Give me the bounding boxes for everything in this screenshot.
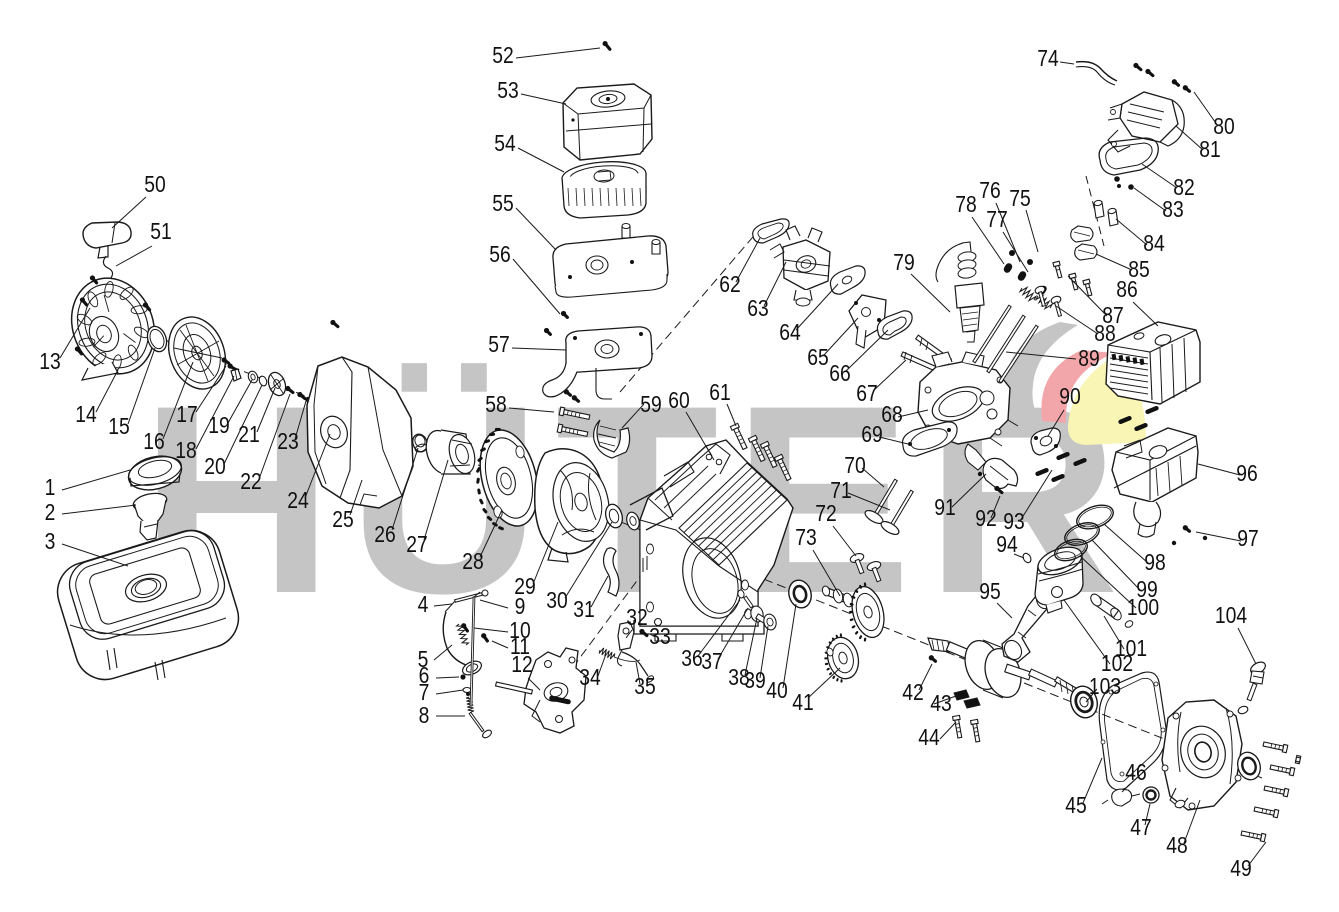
svg-text:4: 4 — [418, 593, 429, 618]
svg-text:62: 62 — [719, 273, 740, 298]
svg-text:57: 57 — [488, 333, 509, 358]
svg-text:66: 66 — [829, 362, 850, 387]
svg-text:7: 7 — [419, 681, 430, 706]
svg-text:34: 34 — [579, 666, 601, 691]
svg-text:78: 78 — [955, 193, 976, 218]
svg-text:17: 17 — [176, 403, 197, 428]
svg-text:64: 64 — [779, 321, 801, 346]
svg-text:92: 92 — [975, 507, 996, 532]
svg-text:8: 8 — [419, 704, 430, 729]
svg-text:19: 19 — [208, 414, 229, 439]
svg-text:42: 42 — [902, 681, 923, 706]
svg-text:102: 102 — [1101, 652, 1133, 677]
svg-text:95: 95 — [979, 580, 1000, 605]
svg-text:30: 30 — [546, 589, 567, 614]
svg-text:16: 16 — [143, 430, 164, 455]
svg-text:13: 13 — [39, 350, 60, 375]
svg-text:44: 44 — [918, 726, 940, 751]
svg-text:26: 26 — [374, 523, 395, 548]
svg-text:70: 70 — [844, 454, 865, 479]
svg-text:36: 36 — [681, 647, 702, 672]
svg-text:68: 68 — [881, 403, 902, 428]
svg-text:50: 50 — [144, 173, 165, 198]
svg-text:83: 83 — [1162, 198, 1183, 223]
svg-text:29: 29 — [514, 575, 535, 600]
svg-text:23: 23 — [277, 430, 298, 455]
svg-text:21: 21 — [238, 423, 259, 448]
svg-text:39: 39 — [744, 669, 765, 694]
svg-text:91: 91 — [934, 496, 955, 521]
svg-text:96: 96 — [1236, 462, 1257, 487]
svg-text:37: 37 — [701, 650, 722, 675]
svg-text:51: 51 — [150, 220, 171, 245]
svg-text:40: 40 — [766, 679, 787, 704]
svg-text:12: 12 — [511, 653, 532, 678]
svg-text:1: 1 — [45, 476, 56, 501]
svg-text:55: 55 — [492, 192, 513, 217]
svg-text:71: 71 — [830, 479, 851, 504]
svg-text:33: 33 — [649, 625, 670, 650]
svg-text:45: 45 — [1065, 794, 1086, 819]
svg-text:49: 49 — [1230, 857, 1251, 882]
svg-text:67: 67 — [856, 382, 877, 407]
svg-text:43: 43 — [930, 692, 951, 717]
svg-text:97: 97 — [1237, 527, 1258, 552]
svg-text:32: 32 — [626, 606, 647, 631]
svg-text:18: 18 — [175, 439, 196, 464]
svg-text:74: 74 — [1037, 47, 1059, 72]
svg-text:2: 2 — [45, 501, 56, 526]
svg-text:28: 28 — [462, 550, 483, 575]
svg-text:90: 90 — [1059, 385, 1080, 410]
svg-text:73: 73 — [795, 526, 816, 551]
svg-text:56: 56 — [489, 243, 510, 268]
svg-text:86: 86 — [1116, 278, 1137, 303]
svg-text:53: 53 — [497, 79, 518, 104]
svg-text:15: 15 — [108, 415, 129, 440]
svg-text:76: 76 — [979, 179, 1000, 204]
svg-text:20: 20 — [204, 455, 225, 480]
svg-text:63: 63 — [747, 297, 768, 322]
svg-text:61: 61 — [709, 381, 730, 406]
svg-text:75: 75 — [1009, 187, 1030, 212]
svg-text:25: 25 — [332, 508, 353, 533]
svg-text:79: 79 — [893, 251, 914, 276]
svg-text:93: 93 — [1003, 510, 1024, 535]
svg-text:69: 69 — [861, 423, 882, 448]
svg-text:41: 41 — [792, 691, 813, 716]
svg-text:80: 80 — [1213, 115, 1234, 140]
svg-text:60: 60 — [668, 389, 689, 414]
svg-text:46: 46 — [1125, 761, 1146, 786]
svg-text:77: 77 — [986, 208, 1007, 233]
svg-text:27: 27 — [406, 533, 427, 558]
svg-text:31: 31 — [573, 598, 594, 623]
svg-text:65: 65 — [807, 346, 828, 371]
svg-text:100: 100 — [1127, 596, 1159, 621]
svg-text:24: 24 — [287, 489, 309, 514]
svg-text:54: 54 — [494, 132, 516, 157]
svg-text:35: 35 — [634, 675, 655, 700]
svg-text:14: 14 — [75, 403, 97, 428]
svg-text:47: 47 — [1130, 816, 1151, 841]
svg-text:3: 3 — [45, 530, 56, 555]
svg-text:48: 48 — [1166, 834, 1187, 859]
svg-text:72: 72 — [815, 502, 836, 527]
svg-text:58: 58 — [485, 393, 506, 418]
svg-text:89: 89 — [1078, 347, 1099, 372]
svg-text:103: 103 — [1089, 675, 1121, 700]
svg-text:104: 104 — [1215, 604, 1247, 629]
svg-text:52: 52 — [492, 44, 513, 69]
svg-text:94: 94 — [996, 533, 1018, 558]
svg-text:22: 22 — [240, 470, 261, 495]
